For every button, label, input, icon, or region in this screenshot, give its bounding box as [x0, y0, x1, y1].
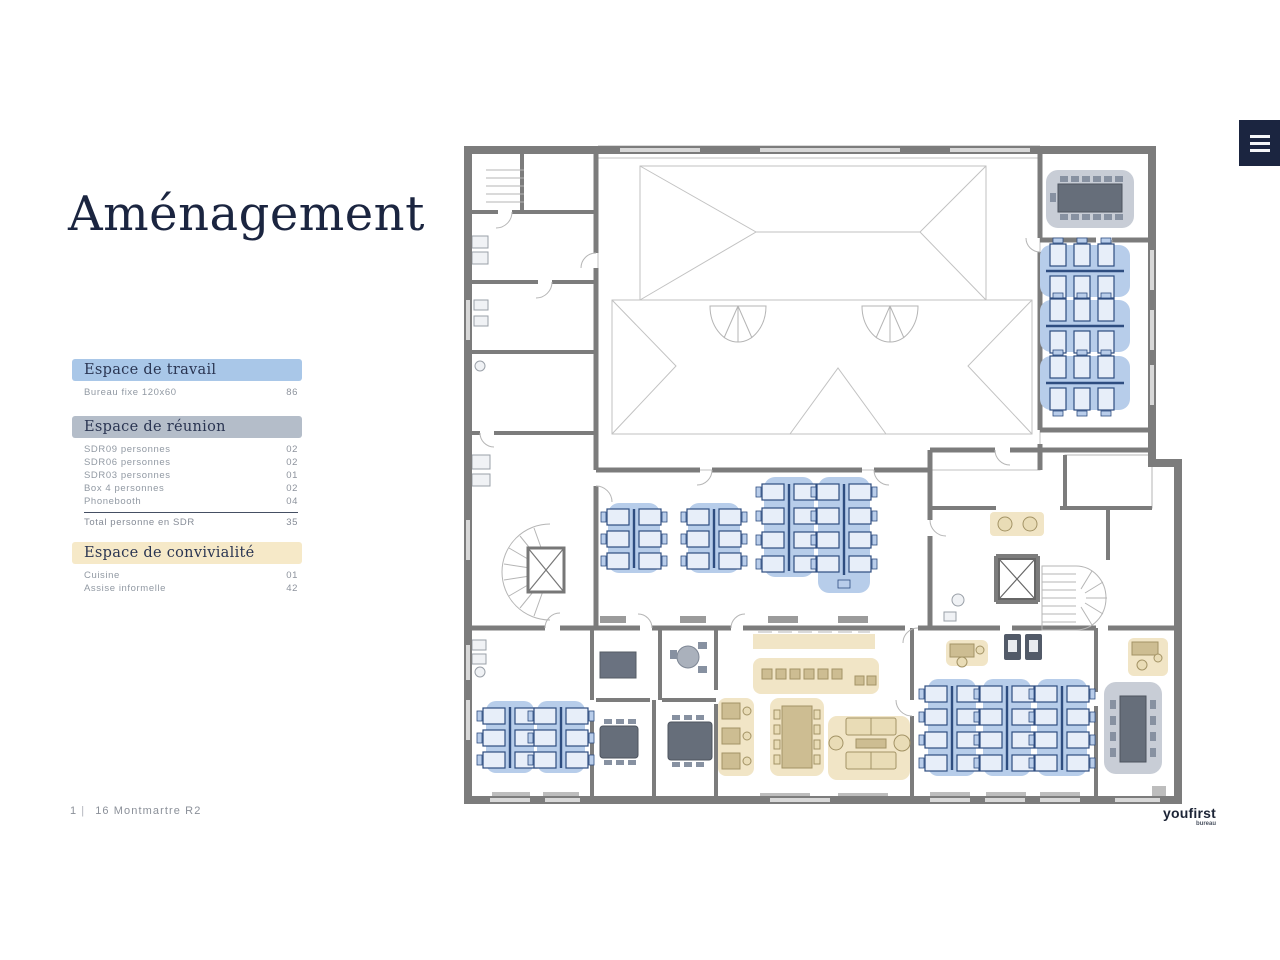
spiral-staircase — [502, 524, 564, 620]
legend-section-convivialite: Espace de convivialité Cuisine 01 Assise… — [72, 542, 302, 595]
legend-row: SDR03 personnes 01 — [84, 469, 298, 482]
footer: 1|16 Montmartre R2 — [70, 805, 201, 817]
legend-header-reunion: Espace de réunion — [72, 416, 302, 438]
page-title: Aménagement — [68, 186, 425, 242]
phonebooth — [1025, 634, 1042, 660]
brand-sub: bureau — [1163, 821, 1216, 827]
desk-cluster — [811, 477, 877, 593]
kitchen-area — [753, 632, 879, 694]
desk-cluster — [1029, 679, 1095, 776]
legend-section-reunion: Espace de réunion SDR09 personnes 02 SDR… — [72, 416, 302, 528]
legend-panel: Espace de travail Bureau fixe 120x60 86 … — [72, 359, 302, 595]
legend-row: Box 4 personnes 02 — [84, 482, 298, 495]
hamburger-menu-icon — [1250, 135, 1270, 152]
desk-cluster — [601, 503, 667, 573]
round-table-room — [670, 642, 707, 673]
menu-button[interactable] — [1239, 120, 1280, 166]
legend-row: SDR09 personnes 02 — [84, 443, 298, 456]
desk-cluster — [1040, 350, 1130, 416]
footer-label: 16 Montmartre R2 — [95, 805, 201, 817]
legend-row: Phonebooth 04 — [84, 495, 298, 508]
corner-desk — [946, 640, 988, 667]
storage-cabinet — [600, 652, 636, 678]
core-elevator — [999, 559, 1035, 599]
brand-logo: youfirst bureau — [1163, 806, 1216, 827]
legend-row: SDR06 personnes 02 — [84, 456, 298, 469]
terrace-hatch — [1065, 455, 1152, 508]
slide-page: Aménagement Espace de travail Bureau fix… — [0, 0, 1280, 960]
brand-name: youfirst — [1163, 806, 1216, 820]
legend-section-travail: Espace de travail Bureau fixe 120x60 86 — [72, 359, 302, 399]
desk-cluster — [681, 503, 747, 573]
legend-header-travail: Espace de travail — [72, 359, 302, 381]
desk-cluster — [1040, 293, 1130, 359]
legend-row: Assise informelle 42 — [84, 582, 298, 595]
box-room-table — [600, 719, 638, 765]
side-tables — [718, 698, 754, 776]
meeting-room-sdr — [1104, 682, 1162, 774]
floor-plan — [460, 143, 1186, 808]
phonebooth — [1004, 634, 1021, 660]
corner-desk — [1128, 638, 1168, 676]
roof-courtyard — [598, 146, 1040, 470]
page-number: 1 — [70, 805, 77, 817]
legend-total-row: Total personne en SDR 35 — [84, 512, 298, 528]
box-room-table — [668, 715, 712, 767]
coffee-point — [990, 512, 1044, 536]
long-table-area — [770, 698, 824, 776]
lounge-area — [828, 716, 910, 780]
desk-cluster — [528, 701, 594, 773]
curved-staircase — [1042, 566, 1107, 630]
legend-header-convivialite: Espace de convivialité — [72, 542, 302, 564]
legend-row: Bureau fixe 120x60 86 — [84, 386, 298, 399]
legend-row: Cuisine 01 — [84, 569, 298, 582]
wc-fixtures — [472, 236, 964, 677]
meeting-room-sdr9 — [1046, 170, 1134, 228]
stairs-top-left — [486, 170, 524, 202]
